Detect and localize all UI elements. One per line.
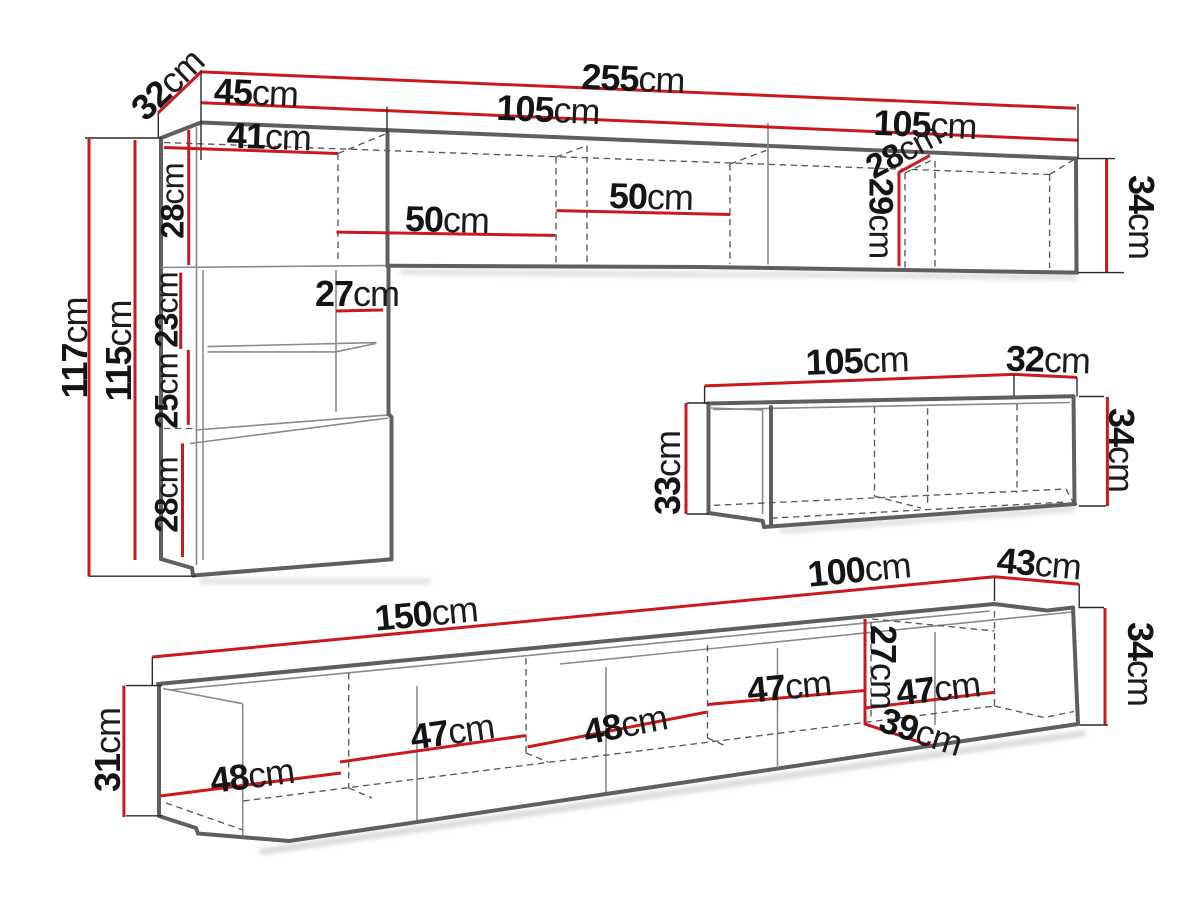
- svg-text:47cm: 47cm: [745, 662, 833, 711]
- svg-text:41cm: 41cm: [226, 115, 311, 159]
- svg-text:117cm: 117cm: [54, 297, 95, 398]
- svg-text:28cm: 28cm: [155, 163, 191, 238]
- svg-text:105cm: 105cm: [496, 87, 601, 132]
- svg-text:43cm: 43cm: [995, 539, 1082, 587]
- svg-text:45cm: 45cm: [213, 70, 299, 114]
- svg-text:34cm: 34cm: [1120, 622, 1161, 706]
- svg-text:25cm: 25cm: [149, 353, 185, 428]
- svg-text:27cm: 27cm: [315, 273, 399, 314]
- svg-text:29cm: 29cm: [862, 178, 900, 258]
- svg-text:50cm: 50cm: [404, 198, 489, 241]
- svg-text:34cm: 34cm: [1121, 175, 1162, 259]
- svg-text:23cm: 23cm: [149, 272, 185, 347]
- svg-text:27cm: 27cm: [863, 625, 904, 709]
- svg-text:34cm: 34cm: [1101, 408, 1142, 492]
- svg-text:28cm: 28cm: [149, 457, 185, 532]
- svg-text:115cm: 115cm: [98, 300, 139, 401]
- svg-text:32cm: 32cm: [1005, 338, 1090, 382]
- svg-text:31cm: 31cm: [87, 708, 128, 792]
- svg-text:105cm: 105cm: [805, 338, 910, 383]
- svg-text:50cm: 50cm: [608, 175, 693, 218]
- svg-text:33cm: 33cm: [647, 431, 688, 515]
